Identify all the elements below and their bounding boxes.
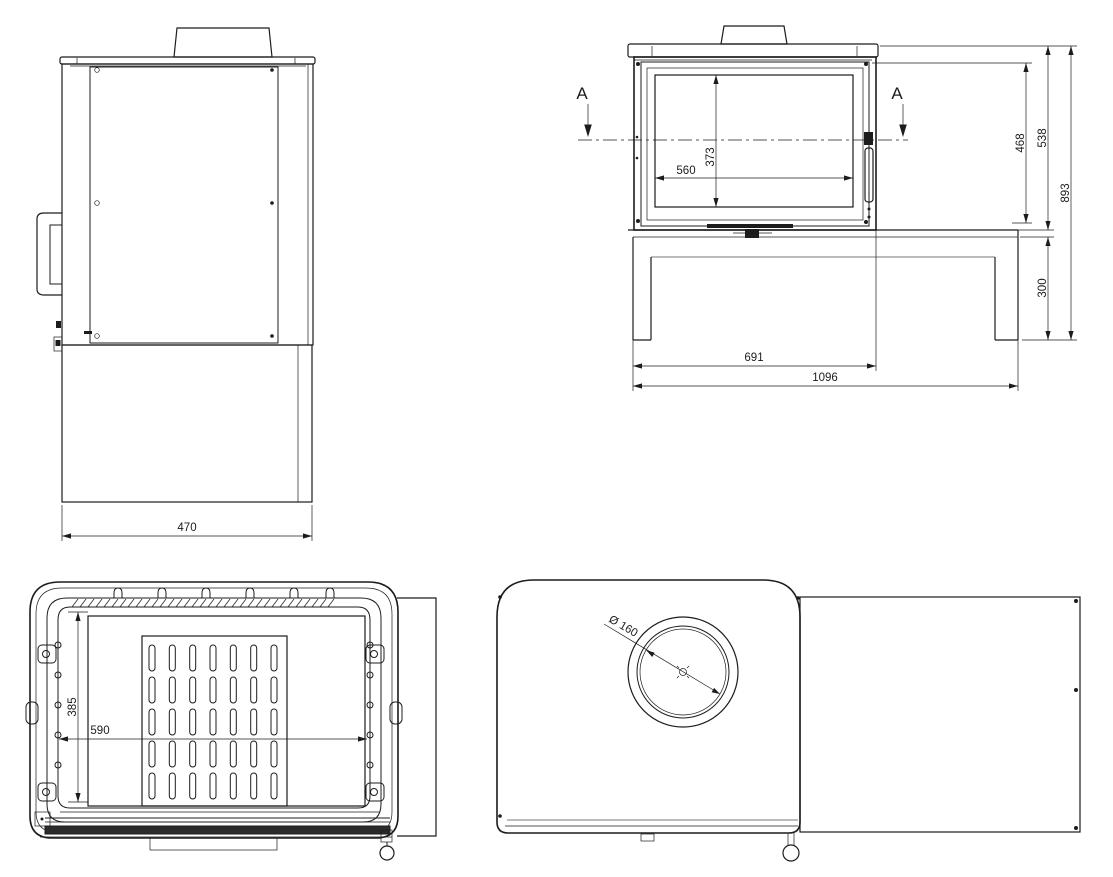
dim-glass-width-label: 560 xyxy=(676,165,695,177)
dim-body-width-label: 691 xyxy=(744,352,763,364)
firebox-opening xyxy=(88,616,365,806)
casting-frame-inner xyxy=(58,607,370,808)
dim-300: 300 xyxy=(1020,237,1054,340)
side-panel xyxy=(90,67,278,343)
air-knob-top xyxy=(783,833,799,861)
dim-590: 590 xyxy=(59,725,367,742)
dim-893: 893 xyxy=(1022,46,1077,340)
flue-collar-side xyxy=(174,28,272,57)
panel-screws xyxy=(95,68,274,339)
section-outer-shell xyxy=(30,582,398,838)
stove-technical-drawing: 470 A xyxy=(0,0,1113,877)
dim-373: 373 xyxy=(705,75,719,207)
section-marker-left: A xyxy=(576,84,588,103)
section-inner-shell xyxy=(36,588,392,832)
bench-front xyxy=(628,230,1018,340)
top-plate-front xyxy=(628,44,878,57)
door-handle-side xyxy=(37,213,62,295)
casting-frame-outer xyxy=(47,598,381,822)
section-line-a-a: A A xyxy=(576,84,908,140)
dim-body-height-label: 538 xyxy=(1037,128,1049,147)
stove-top-plate xyxy=(497,580,800,833)
vent-mark xyxy=(84,331,92,334)
dim-1096: 1096 xyxy=(633,340,1018,391)
dim-total-width-label: 1096 xyxy=(812,372,838,384)
section-view-a-a: 385 590 xyxy=(26,582,436,860)
dim-opening-width-label: 590 xyxy=(90,725,109,737)
flue-collar-front xyxy=(721,26,787,44)
door-frame xyxy=(641,62,869,226)
dim-total-height-label: 893 xyxy=(1060,183,1072,202)
bench-screws xyxy=(1074,599,1078,830)
casting-bumps xyxy=(55,642,373,768)
latch-mark xyxy=(56,321,61,328)
top-view: Ø 160 xyxy=(497,580,1080,861)
door-frame-inner xyxy=(647,68,863,220)
dim-glass-height-label: 373 xyxy=(705,147,717,166)
top-plate-side xyxy=(60,57,315,64)
slotted-back-panel xyxy=(142,636,287,806)
pedestal-side xyxy=(62,345,312,502)
bench-behind xyxy=(397,598,436,836)
hinge-bracket xyxy=(54,337,62,351)
air-vent xyxy=(707,224,793,228)
dim-base-height-label: 300 xyxy=(1037,278,1049,297)
dim-door-height-label: 468 xyxy=(1015,133,1027,152)
dim-depth-label: 470 xyxy=(177,522,196,534)
dim-385: 385 xyxy=(67,612,88,802)
door-latches xyxy=(38,645,384,801)
top-clips xyxy=(114,588,334,598)
dim-flue-diameter: Ø 160 xyxy=(604,614,720,694)
bench-top-plate xyxy=(800,597,1080,832)
dim-538: 538 xyxy=(880,46,1077,230)
section-marker-right: A xyxy=(891,84,903,103)
dim-470: 470 xyxy=(62,505,312,541)
baffle-hatch xyxy=(72,599,334,607)
side-view: 470 xyxy=(37,28,315,541)
stove-body-front xyxy=(634,57,876,230)
floor-strips xyxy=(35,812,392,850)
door-glass xyxy=(655,75,853,207)
stove-body-side xyxy=(62,64,313,345)
dim-560: 560 xyxy=(655,165,853,181)
door-screws xyxy=(636,62,868,224)
dim-691: 691 xyxy=(633,230,876,391)
dim-opening-height-label: 385 xyxy=(67,697,79,716)
front-view: A A 468 xyxy=(576,26,1077,391)
center-tab xyxy=(641,834,654,841)
